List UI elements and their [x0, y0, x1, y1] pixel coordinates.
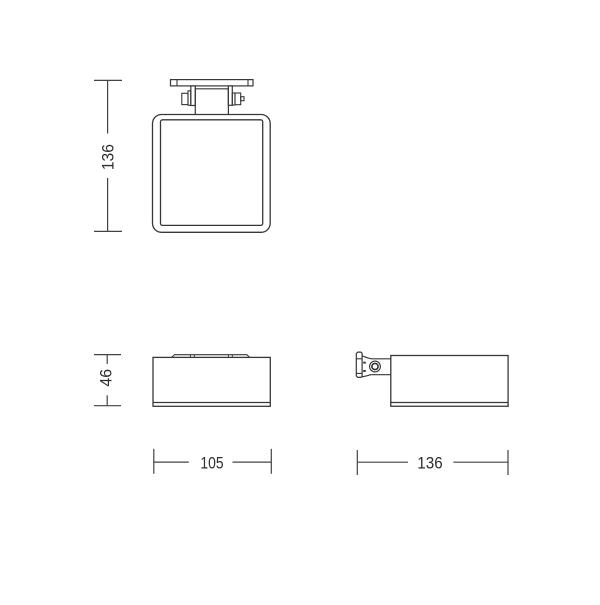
svg-text:136: 136 [98, 144, 117, 170]
svg-text:136: 136 [417, 453, 442, 472]
svg-text:105: 105 [200, 453, 223, 472]
svg-text:46: 46 [96, 369, 115, 387]
